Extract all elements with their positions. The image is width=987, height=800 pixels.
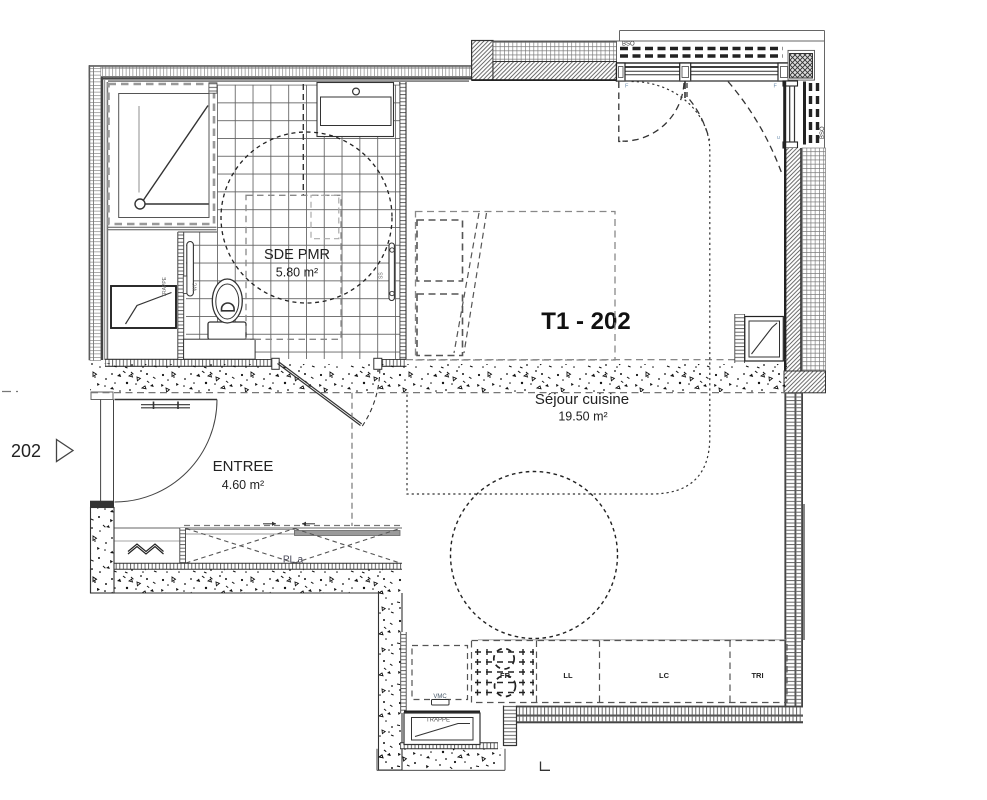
svg-text:SS: SS (379, 272, 385, 279)
svg-text:202: 202 (11, 441, 41, 461)
svg-text:SDE PMR: SDE PMR (264, 247, 330, 263)
svg-text:5.80 m²: 5.80 m² (276, 266, 318, 280)
svg-text:ENTREE: ENTREE (213, 458, 274, 475)
svg-text:Séjour cuisine: Séjour cuisine (535, 391, 629, 408)
svg-text:T1 - 202: T1 - 202 (541, 308, 630, 335)
svg-text:BSO: BSO (622, 42, 635, 48)
svg-text:19.50 m²: 19.50 m² (558, 410, 607, 424)
svg-text:LL: LL (563, 671, 573, 680)
svg-text:4.60 m²: 4.60 m² (222, 478, 264, 492)
svg-text:TRAPPE: TRAPPE (162, 276, 168, 297)
svg-text:u: u (777, 135, 780, 141)
svg-text:FR: FR (500, 671, 511, 680)
svg-text:BSO: BSO (820, 126, 826, 139)
svg-text:TRAPPE: TRAPPE (426, 718, 450, 724)
svg-text:WC: WC (193, 282, 199, 291)
svg-text:TRI: TRI (751, 671, 763, 680)
svg-text:LC: LC (659, 671, 670, 680)
